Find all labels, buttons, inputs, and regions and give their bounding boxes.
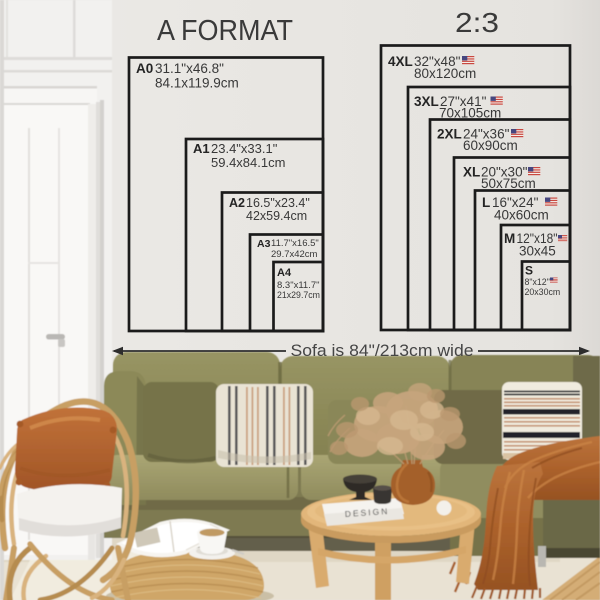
svg-text:XL: XL bbox=[463, 165, 480, 180]
svg-text:2:3: 2:3 bbox=[455, 7, 499, 38]
svg-text:30x45: 30x45 bbox=[519, 244, 556, 259]
svg-text:21x29.7cm: 21x29.7cm bbox=[277, 290, 320, 301]
svg-text:31.1"x46.8": 31.1"x46.8" bbox=[155, 61, 224, 76]
svg-text:80x120cm: 80x120cm bbox=[414, 66, 476, 81]
svg-text:A4: A4 bbox=[277, 267, 292, 279]
svg-text:2XL: 2XL bbox=[437, 127, 462, 142]
svg-text:84.1x119.9cm: 84.1x119.9cm bbox=[155, 76, 239, 91]
svg-text:A1: A1 bbox=[193, 141, 210, 156]
svg-text:60x90cm: 60x90cm bbox=[463, 138, 518, 153]
svg-text:70x105cm: 70x105cm bbox=[439, 106, 501, 121]
svg-text:23.4"x33.1": 23.4"x33.1" bbox=[211, 141, 278, 156]
svg-text:A0: A0 bbox=[136, 61, 153, 76]
svg-text:3XL: 3XL bbox=[414, 94, 439, 109]
svg-text:29.7x42cm: 29.7x42cm bbox=[271, 249, 318, 260]
svg-text:A2: A2 bbox=[229, 196, 245, 210]
svg-text:59.4x84.1cm: 59.4x84.1cm bbox=[211, 155, 285, 170]
svg-text:42x59.4cm: 42x59.4cm bbox=[246, 209, 307, 223]
svg-text:L: L bbox=[482, 195, 490, 210]
svg-text:8"x12": 8"x12" bbox=[525, 277, 550, 287]
svg-text:A FORMAT: A FORMAT bbox=[157, 15, 293, 47]
svg-text:11.7"x16.5": 11.7"x16.5" bbox=[271, 238, 319, 249]
svg-text:40x60cm: 40x60cm bbox=[494, 208, 549, 223]
svg-text:S: S bbox=[525, 264, 533, 278]
svg-text:16.5"x23.4": 16.5"x23.4" bbox=[246, 196, 310, 210]
svg-text:A3: A3 bbox=[257, 238, 271, 250]
svg-text:20x30cm: 20x30cm bbox=[525, 287, 561, 297]
svg-text:4XL: 4XL bbox=[388, 54, 413, 69]
svg-text:M: M bbox=[504, 231, 515, 246]
svg-text:50x75cm: 50x75cm bbox=[481, 176, 536, 191]
svg-text:Sofa is 84"/213cm wide: Sofa is 84"/213cm wide bbox=[291, 342, 474, 360]
